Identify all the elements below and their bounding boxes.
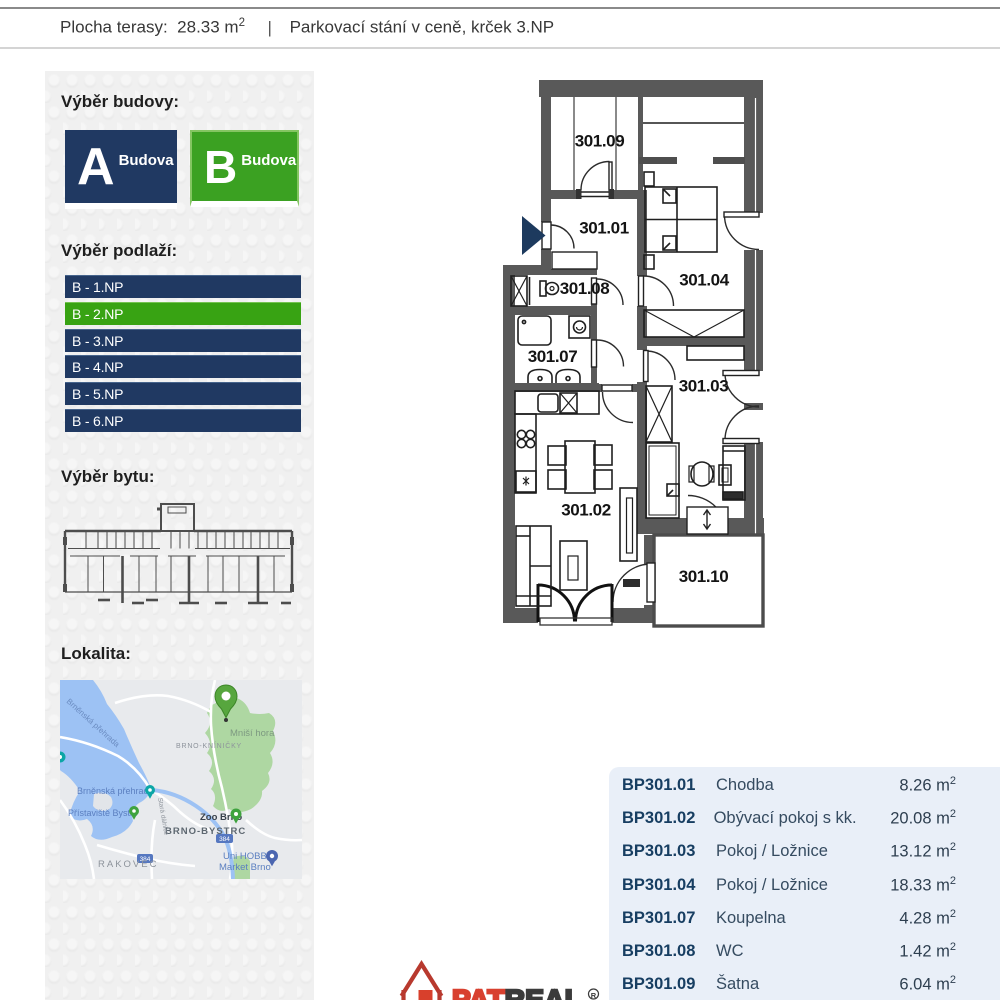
svg-text:RAKOVEC: RAKOVEC <box>98 859 158 870</box>
svg-text:Brněnská přehrada: Brněnská přehrada <box>77 786 154 796</box>
svg-text:384: 384 <box>219 836 230 843</box>
svg-text:Market Brno: Market Brno <box>219 862 271 873</box>
svg-text:301.02: 301.02 <box>561 501 611 520</box>
svg-text:301.08: 301.08 <box>560 279 610 298</box>
svg-text:Přístaviště Bystrc: Přístaviště Bystrc <box>68 808 138 818</box>
svg-text:301.07: 301.07 <box>528 347 578 366</box>
svg-text:PATREAL: PATREAL <box>452 984 582 1000</box>
svg-text:BRNO-KNÍNIČKY: BRNO-KNÍNIČKY <box>176 741 242 750</box>
svg-text:301.10: 301.10 <box>679 567 729 586</box>
svg-text:BRNO-BYSTRC: BRNO-BYSTRC <box>165 826 246 837</box>
svg-text:301.03: 301.03 <box>679 377 729 396</box>
svg-text:301.09: 301.09 <box>575 132 625 151</box>
svg-text:Mniší hora: Mniší hora <box>230 728 275 739</box>
svg-text:301.01: 301.01 <box>579 219 629 238</box>
svg-text:301.04: 301.04 <box>679 271 730 290</box>
svg-text:R: R <box>591 991 597 1000</box>
